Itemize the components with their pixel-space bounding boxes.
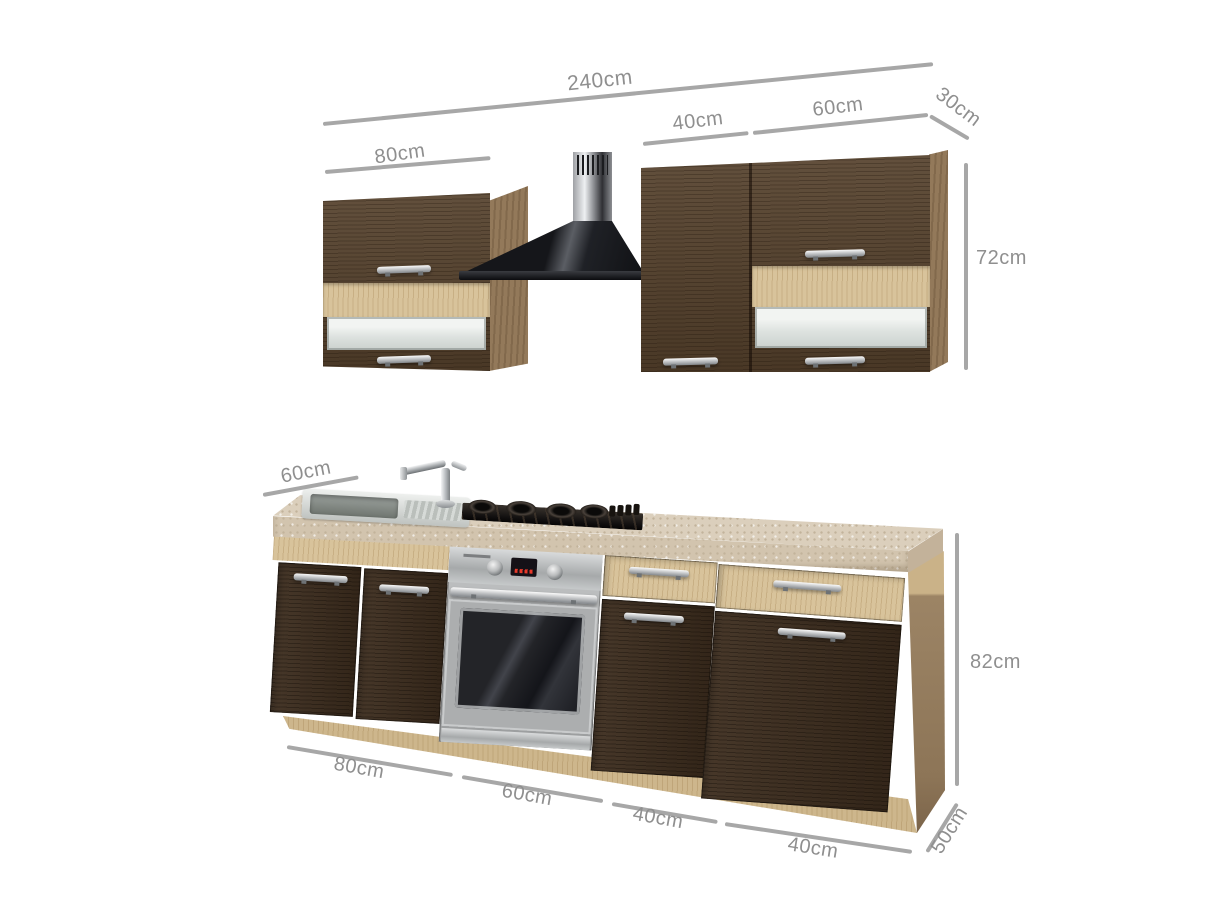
drawer-unit-1 [590, 555, 717, 784]
wall-cabinet-left-oak-panel [323, 283, 490, 317]
wall-cabinet-right-top-handle [805, 249, 865, 258]
wall-cabinet-left [323, 193, 490, 371]
oven-unit [439, 546, 603, 750]
dim-line-base-height [955, 533, 959, 786]
dim-label-base-drawer1: 40cm [617, 800, 700, 837]
wall-cabinet-left-top-handle [377, 265, 431, 274]
wall-cabinet-right-bottom-handle [805, 356, 865, 365]
faucet-lever [450, 460, 467, 472]
base-side-panel [906, 551, 945, 833]
wall-cabinet-right-glass-door [755, 307, 927, 348]
faucet-base [436, 500, 455, 508]
wall-cabinet-right-door-handle [663, 357, 718, 365]
range-hood-vent-grille [577, 155, 608, 175]
kitchen-dimension-diagram: 240cm 80cm 40cm 60cm 30cm 72cm 60cm 82cm… [0, 0, 1213, 909]
wall-cabinet-left-glass-door [327, 317, 486, 350]
drawer-unit-2-door [701, 611, 902, 812]
drawer-unit-1-drawer-front [602, 555, 717, 603]
wall-cabinet-right-oak-panel [752, 266, 930, 307]
oven-door [442, 599, 598, 734]
hob-knob-4 [633, 504, 640, 515]
faucet-spout-tip [400, 467, 407, 480]
wall-cabinet-left-bottom-handle [377, 355, 431, 364]
base-sink-cabinet [264, 536, 450, 724]
dim-label-base-sink: 80cm [318, 750, 401, 787]
base-sink-cabinet-door-right-handle [379, 584, 429, 594]
sink-basin [310, 494, 399, 519]
wall-cabinet-right-side-panel [929, 150, 948, 372]
base-sink-cabinet-door-left [270, 562, 361, 717]
oven-door-window [455, 608, 586, 715]
dim-label-wall-height: 72cm [976, 247, 1027, 270]
wall-cabinet-right [641, 155, 930, 372]
faucet-spout [402, 460, 446, 476]
dim-line-wall-height [964, 163, 968, 370]
hob-knob-3 [625, 504, 632, 515]
hob-knob-1 [609, 505, 616, 516]
oven-display [510, 558, 537, 577]
dim-label-base-height: 82cm [970, 651, 1021, 674]
dim-label-base-oven: 60cm [486, 777, 569, 814]
hob-knob-2 [617, 505, 624, 516]
oven-display-digits [515, 569, 533, 574]
range-hood-base-bar [459, 271, 646, 280]
kitchen-faucet [396, 455, 466, 510]
dim-label-base-drawer2: 40cm [772, 831, 855, 866]
drawer-unit-1-door [591, 599, 715, 778]
drawer-unit-2 [701, 560, 906, 818]
range-hood-chimney [573, 152, 612, 223]
